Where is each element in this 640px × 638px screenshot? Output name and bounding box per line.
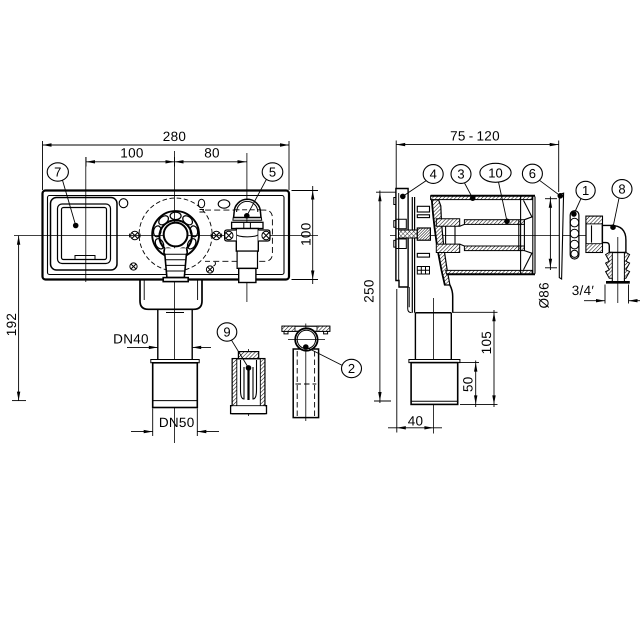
svg-text:250: 250 <box>362 279 377 302</box>
svg-text:10: 10 <box>488 165 502 180</box>
svg-text:5: 5 <box>269 165 276 180</box>
svg-text:Ø86: Ø86 <box>537 282 552 308</box>
svg-text:50: 50 <box>461 376 476 392</box>
svg-text:6: 6 <box>529 166 536 181</box>
svg-text:100: 100 <box>120 146 143 161</box>
svg-text:40: 40 <box>408 414 424 429</box>
svg-text:2: 2 <box>348 361 355 376</box>
svg-text:1: 1 <box>582 183 589 198</box>
svg-text:3/4′: 3/4′ <box>572 283 595 298</box>
svg-text:3: 3 <box>457 167 464 182</box>
svg-text:100: 100 <box>298 222 313 245</box>
svg-text:105: 105 <box>479 331 494 354</box>
svg-text:DN50: DN50 <box>159 415 195 430</box>
svg-text:192: 192 <box>4 313 19 336</box>
svg-text:9: 9 <box>223 325 230 340</box>
svg-text:75 - 120: 75 - 120 <box>450 129 500 144</box>
svg-text:DN40: DN40 <box>113 332 149 347</box>
svg-text:7: 7 <box>54 165 61 180</box>
svg-text:4: 4 <box>430 167 437 182</box>
svg-text:280: 280 <box>163 129 186 144</box>
svg-text:80: 80 <box>204 146 220 161</box>
svg-text:8: 8 <box>618 182 625 197</box>
